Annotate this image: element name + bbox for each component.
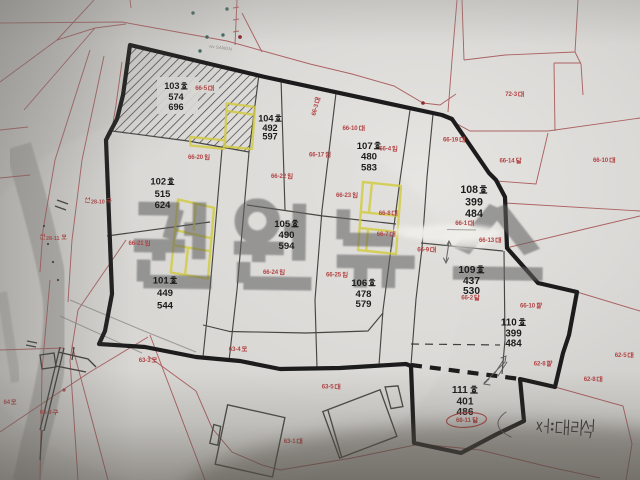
svg-text:62-8: 62-8 bbox=[534, 361, 547, 368]
svg-text:490: 490 bbox=[278, 230, 294, 241]
svg-text:66-2: 66-2 bbox=[461, 295, 474, 302]
svg-text:399: 399 bbox=[465, 197, 483, 209]
svg-text:66-17: 66-17 bbox=[309, 152, 325, 159]
svg-text:624: 624 bbox=[155, 199, 171, 210]
svg-text:66-19: 66-19 bbox=[443, 137, 459, 144]
svg-text:66-23: 66-23 bbox=[336, 192, 352, 199]
svg-text:484: 484 bbox=[505, 339, 522, 350]
svg-text:66-7: 66-7 bbox=[377, 231, 390, 238]
svg-text:109: 109 bbox=[458, 265, 475, 276]
svg-text:484: 484 bbox=[465, 208, 483, 220]
svg-text:66-4: 66-4 bbox=[379, 146, 392, 153]
svg-text:544: 544 bbox=[157, 301, 174, 312]
svg-text:108: 108 bbox=[460, 184, 478, 196]
svg-text:66-25: 66-25 bbox=[326, 272, 342, 279]
svg-text:594: 594 bbox=[278, 241, 295, 252]
svg-text:66-9: 66-9 bbox=[417, 247, 430, 254]
svg-text:63-3: 63-3 bbox=[139, 357, 152, 364]
svg-text:107: 107 bbox=[357, 141, 373, 152]
svg-text:105: 105 bbox=[274, 219, 291, 230]
svg-text:66-13: 66-13 bbox=[479, 237, 495, 244]
svg-text:104: 104 bbox=[258, 113, 274, 123]
svg-text:110: 110 bbox=[501, 318, 517, 329]
svg-text:62-5: 62-5 bbox=[615, 352, 628, 359]
svg-text:579: 579 bbox=[355, 299, 371, 310]
svg-text:66-10: 66-10 bbox=[343, 125, 359, 132]
svg-text:66-10: 66-10 bbox=[593, 157, 609, 164]
svg-text:63-4: 63-4 bbox=[229, 346, 242, 353]
svg-text:66-10: 66-10 bbox=[520, 303, 536, 310]
svg-text:66-8: 66-8 bbox=[379, 210, 392, 217]
svg-text:72-3: 72-3 bbox=[505, 91, 518, 98]
svg-text:66-14: 66-14 bbox=[500, 158, 516, 165]
svg-text:106: 106 bbox=[351, 278, 367, 289]
svg-text:66-1: 66-1 bbox=[455, 220, 468, 227]
svg-text:101: 101 bbox=[153, 276, 170, 287]
svg-text:66-24: 66-24 bbox=[263, 269, 279, 276]
svg-text:66-22: 66-22 bbox=[271, 173, 287, 180]
svg-text:583: 583 bbox=[361, 163, 377, 174]
svg-text:449: 449 bbox=[157, 288, 173, 299]
svg-text:597: 597 bbox=[262, 132, 277, 142]
svg-text:480: 480 bbox=[361, 151, 377, 162]
